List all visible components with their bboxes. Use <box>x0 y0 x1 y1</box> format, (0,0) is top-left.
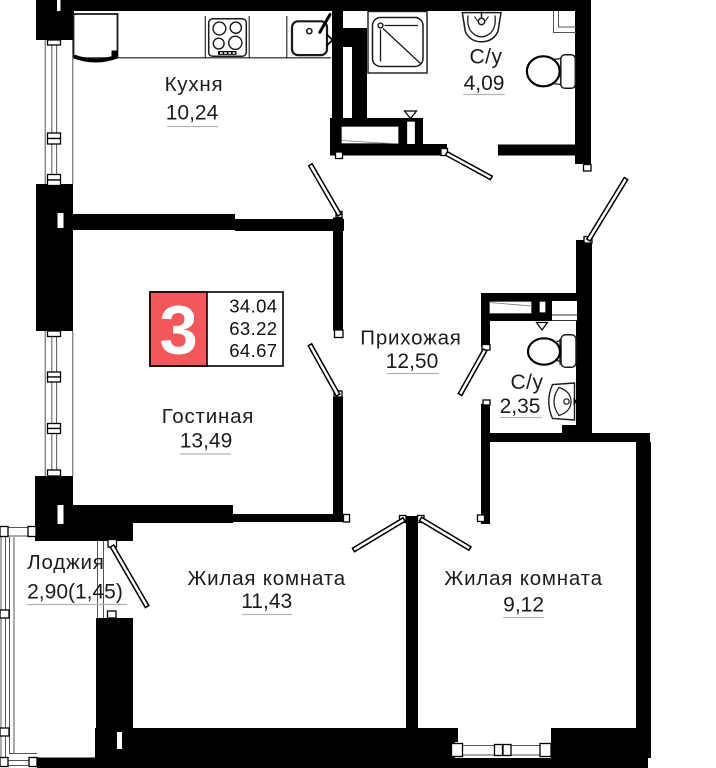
svg-text:Кухня: Кухня <box>165 73 224 96</box>
svg-text:10,24: 10,24 <box>166 102 219 125</box>
svg-text:Жилая комната: Жилая комната <box>187 567 345 590</box>
svg-text:2,90(1,45): 2,90(1,45) <box>27 581 123 604</box>
svg-text:9,12: 9,12 <box>503 594 544 617</box>
svg-text:С/у: С/у <box>511 371 544 394</box>
svg-text:11,43: 11,43 <box>241 590 292 613</box>
svg-text:34.04: 34.04 <box>229 296 277 317</box>
svg-text:Прихожая: Прихожая <box>360 327 461 350</box>
svg-text:Гостиная: Гостиная <box>162 405 254 428</box>
svg-text:4,09: 4,09 <box>464 72 505 95</box>
svg-text:13,49: 13,49 <box>180 430 233 453</box>
svg-text:63.22: 63.22 <box>229 318 277 339</box>
svg-text:12,50: 12,50 <box>386 350 439 373</box>
svg-text:2,35: 2,35 <box>500 395 541 418</box>
svg-text:С/у: С/у <box>470 45 503 68</box>
svg-text:3: 3 <box>159 292 197 369</box>
svg-text:Лоджия: Лоджия <box>27 551 104 574</box>
svg-text:Жилая комната: Жилая комната <box>444 567 602 590</box>
svg-text:64.67: 64.67 <box>229 340 277 361</box>
